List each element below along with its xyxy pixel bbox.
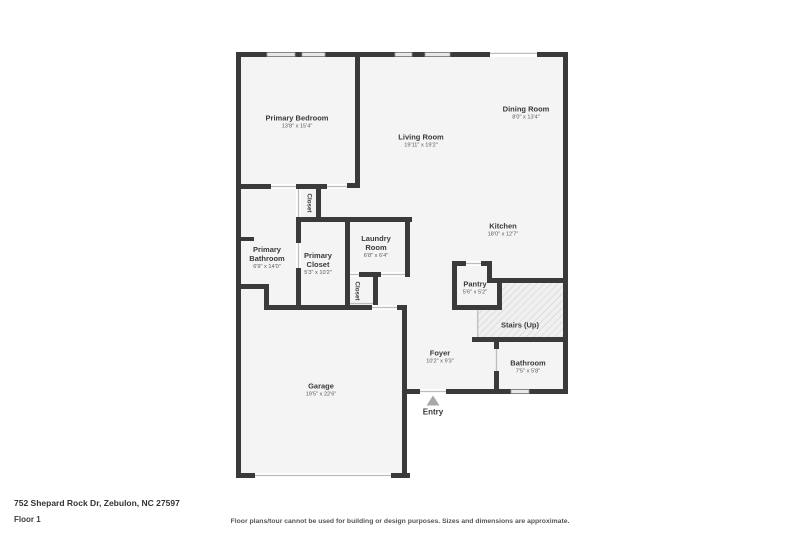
floorplan-page: Primary Bedroom 13'8" x 15'4" Living Roo… xyxy=(0,0,800,533)
floorplan-drawing xyxy=(0,0,800,533)
property-address: 752 Shepard Rock Dr, Zebulon, NC 27597 xyxy=(14,498,180,508)
room-label-closet-hall: Closet xyxy=(306,194,313,213)
entry-arrow-icon xyxy=(427,396,440,406)
disclaimer-text: Floor plans/tour cannot be used for buil… xyxy=(0,518,800,525)
entry-label: Entry xyxy=(423,408,443,417)
room-label-closet-laundry: Closet xyxy=(354,282,361,301)
